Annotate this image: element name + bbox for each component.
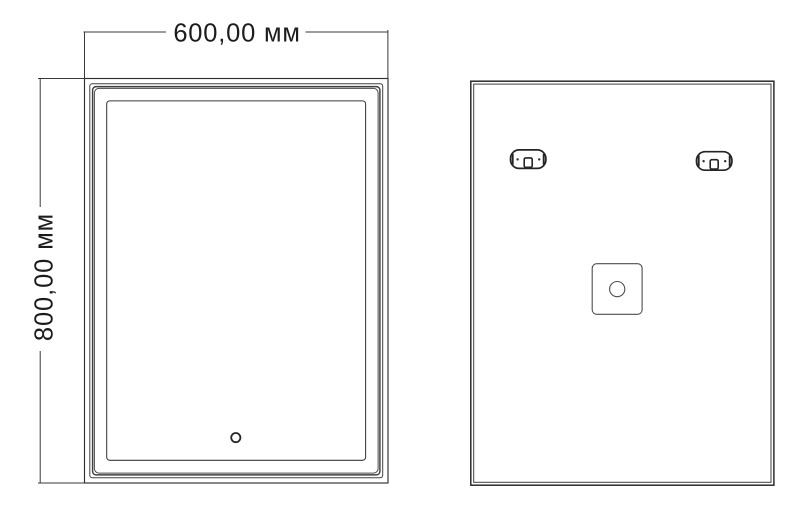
svg-text:800,00 мм: 800,00 мм: [30, 213, 58, 341]
svg-text:600,00 мм: 600,00 мм: [173, 20, 300, 48]
